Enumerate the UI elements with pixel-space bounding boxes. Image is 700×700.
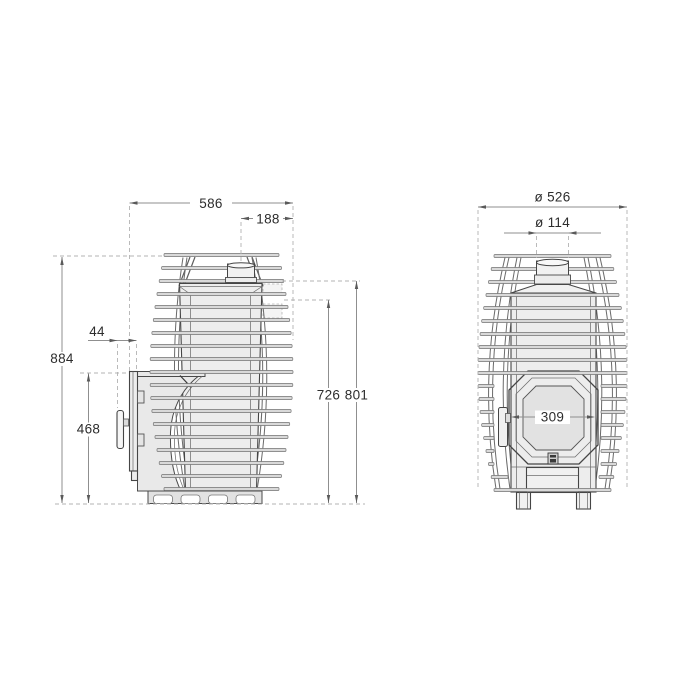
dim-label-firebox-height: 468: [77, 422, 100, 437]
side-view: [117, 254, 293, 504]
side-chimney: [226, 263, 257, 283]
dim-label-door-width: 309: [541, 410, 564, 425]
brand-logo-mark: [548, 453, 558, 464]
dim-label-chimney-diameter: ø 114: [535, 215, 570, 230]
front-view: [478, 255, 627, 510]
dim-label-chimney-offset: 188: [256, 212, 279, 227]
drawing-canvas: 586 188 44 884: [0, 0, 700, 700]
dim-label-801: 801: [345, 388, 368, 403]
dim-label-overall-diameter: ø 526: [534, 190, 570, 205]
front-top-cap: [511, 285, 596, 294]
side-door-hinge-bottom: [138, 434, 145, 446]
side-door-hinge-top: [138, 391, 145, 403]
dim-cage-top-height: 726: [284, 300, 344, 503]
dim-label-overall-height: 884: [50, 351, 74, 366]
side-base-plate: [148, 491, 262, 504]
dim-label-handle-offset: 44: [89, 324, 105, 339]
side-door-plate: [130, 372, 138, 472]
dim-chimney-diameter: ø 114: [504, 215, 601, 258]
front-legs: [517, 493, 591, 510]
technical-drawing: 586 188 44 884: [0, 0, 700, 700]
dim-label-overall-depth: 586: [199, 196, 222, 211]
side-stove-body: [180, 284, 263, 492]
side-rear-ports: [263, 284, 282, 318]
front-chimney: [535, 259, 571, 284]
dim-label-726: 726: [317, 388, 340, 403]
side-door-handle: [117, 411, 124, 449]
